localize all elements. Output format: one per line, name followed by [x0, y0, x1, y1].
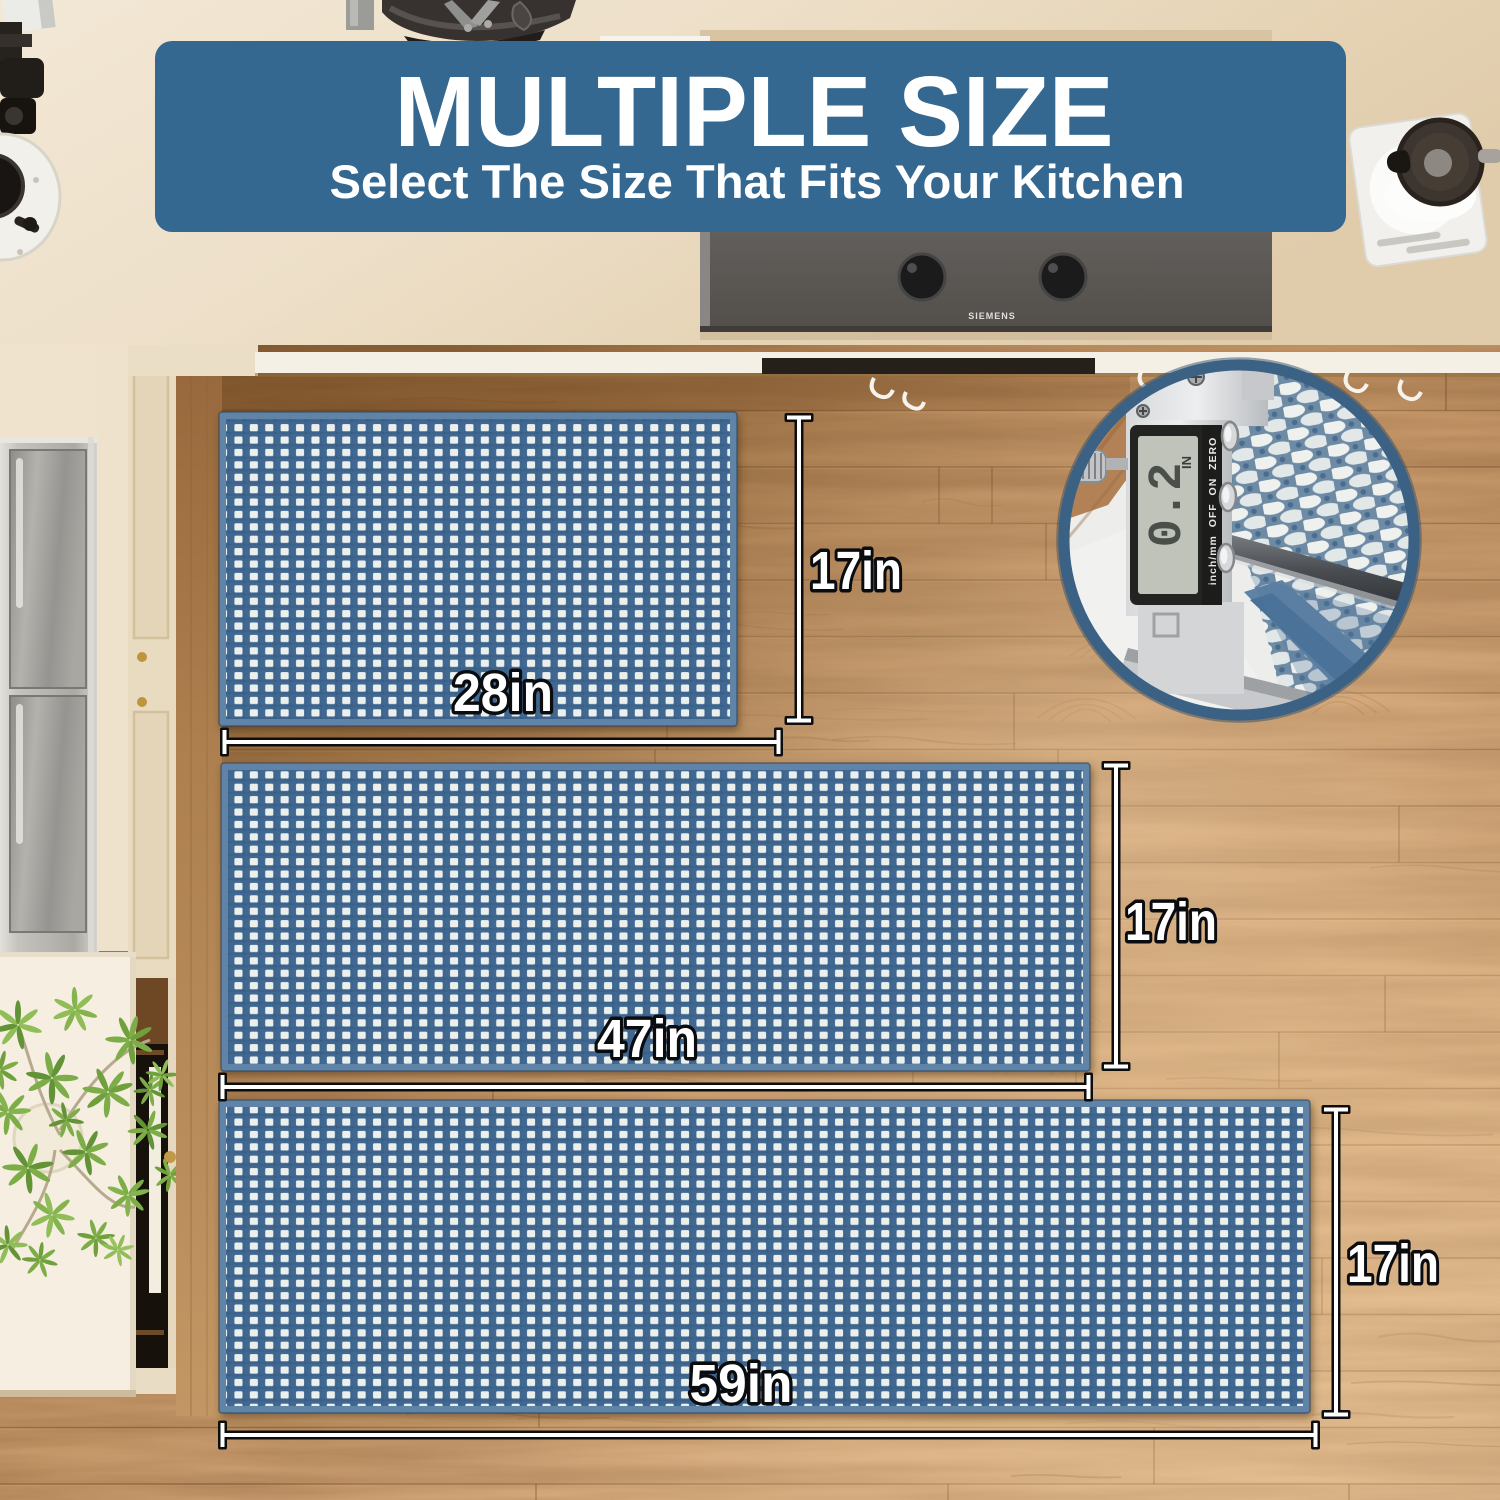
svg-text:Select The Size That Fits Your: Select The Size That Fits Your Kitchen — [330, 155, 1185, 208]
svg-text:SIEMENS: SIEMENS — [968, 311, 1016, 321]
svg-text:17in: 17in — [1347, 1234, 1439, 1294]
svg-text:0.2: 0.2 — [1142, 463, 1195, 548]
svg-text:59in: 59in — [690, 1354, 793, 1414]
svg-text:17in: 17in — [1125, 892, 1217, 952]
svg-text:17in: 17in — [810, 541, 902, 601]
svg-text:28in: 28in — [453, 663, 553, 723]
svg-text:inch/mm OFF ON ZERO: inch/mm OFF ON ZERO — [1207, 437, 1219, 586]
svg-text:IN: IN — [1179, 456, 1194, 469]
svg-text:47in: 47in — [597, 1009, 697, 1069]
svg-text:MULTIPLE SIZE: MULTIPLE SIZE — [395, 56, 1114, 168]
